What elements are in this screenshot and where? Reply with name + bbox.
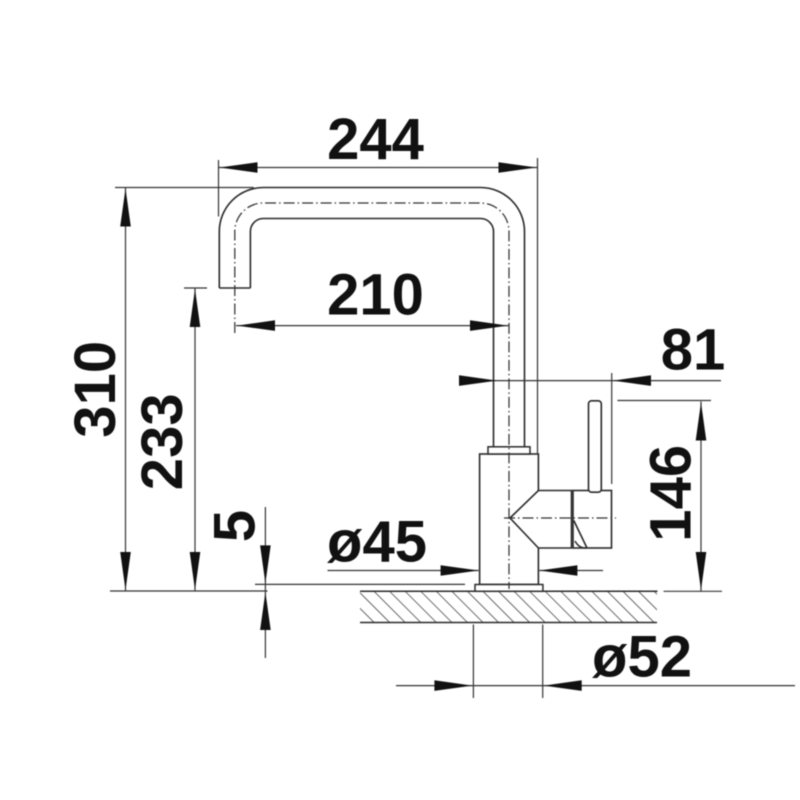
svg-text:ø52: ø52 [592, 625, 692, 690]
svg-text:81: 81 [661, 318, 726, 383]
svg-text:146: 146 [639, 445, 704, 542]
svg-text:244: 244 [327, 107, 424, 172]
svg-text:210: 210 [327, 263, 424, 328]
svg-text:233: 233 [130, 393, 195, 490]
svg-text:ø45: ø45 [327, 510, 427, 575]
svg-text:5: 5 [203, 510, 268, 542]
svg-text:310: 310 [63, 341, 128, 438]
